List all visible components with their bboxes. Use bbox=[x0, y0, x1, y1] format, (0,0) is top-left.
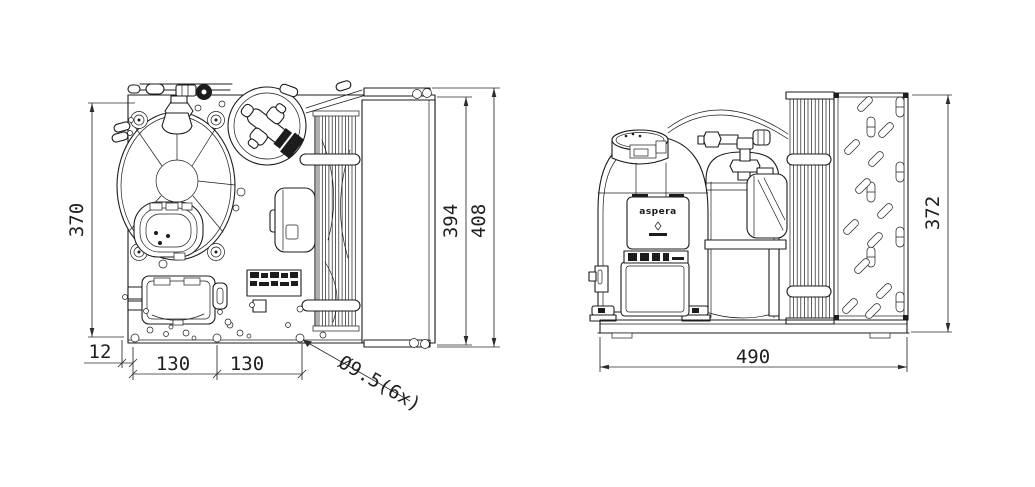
top-view bbox=[111, 80, 435, 349]
technical-drawing-canvas: aspera bbox=[0, 0, 1035, 487]
valve-handwheel bbox=[753, 130, 770, 145]
dim-text-130-b: 130 bbox=[230, 353, 264, 375]
fan-strut bbox=[705, 240, 786, 249]
dim-text-394: 394 bbox=[440, 204, 462, 238]
cable-gland bbox=[213, 283, 227, 309]
front-bracket-plate bbox=[621, 262, 689, 316]
dim-text-408: 408 bbox=[468, 204, 490, 238]
dim-text-hole-callout: Ø9.5(6x) bbox=[335, 351, 425, 416]
dim-text-12: 12 bbox=[89, 341, 112, 363]
coil-header-tube bbox=[300, 154, 360, 165]
mounting-hole bbox=[296, 334, 304, 342]
condensing-unit-two-view-drawing: aspera bbox=[0, 0, 1035, 487]
suction-bell bbox=[162, 113, 192, 134]
coil-header-tube bbox=[787, 154, 831, 165]
fan-motor-side-view bbox=[747, 168, 787, 238]
dim-unit-height: 372 bbox=[911, 95, 952, 332]
dim-text-130-a: 130 bbox=[156, 353, 190, 375]
pipe-fitting bbox=[146, 84, 164, 94]
pipe-fitting bbox=[335, 80, 352, 92]
condenser-coil-side-view bbox=[786, 92, 834, 324]
base-rail bbox=[598, 320, 909, 338]
dim-coil-height: 394 bbox=[437, 97, 472, 345]
side-view: aspera bbox=[589, 92, 909, 338]
dim-text-490: 490 bbox=[736, 346, 770, 368]
fan-motor-top-view bbox=[270, 188, 315, 252]
terminal-strip bbox=[624, 251, 688, 263]
compressor-label-box: aspera bbox=[627, 194, 689, 249]
process-tube-stub bbox=[111, 131, 129, 143]
dim-base-width: 490 bbox=[600, 337, 907, 372]
dim-text-370: 370 bbox=[66, 203, 88, 237]
compressor-side-view: aspera bbox=[589, 130, 710, 321]
compressor-top-cap bbox=[612, 130, 668, 164]
grille-panel bbox=[834, 93, 908, 320]
coil-header-tube bbox=[302, 300, 360, 311]
condenser-panel-top-view bbox=[362, 88, 435, 349]
cable-connector bbox=[128, 301, 143, 310]
coil-header-tube bbox=[787, 286, 831, 297]
dim-hole-callout: Ø9.5(6x) bbox=[303, 340, 425, 416]
valve-body bbox=[176, 85, 196, 96]
side-bracket bbox=[595, 266, 608, 292]
dim-text-372: 372 bbox=[922, 196, 944, 230]
mounting-hole bbox=[213, 334, 221, 342]
dim-hole-pitches: 12 130 130 bbox=[84, 340, 306, 380]
brand-label: aspera bbox=[639, 207, 677, 217]
mounting-hole bbox=[131, 334, 139, 342]
plate-cutout bbox=[253, 300, 266, 312]
compressor-dome-center bbox=[156, 160, 198, 202]
pipe-fitting bbox=[128, 85, 140, 93]
fan-strut-leg bbox=[769, 249, 779, 316]
cable-connector bbox=[128, 287, 143, 299]
terminal-cover bbox=[134, 202, 203, 260]
